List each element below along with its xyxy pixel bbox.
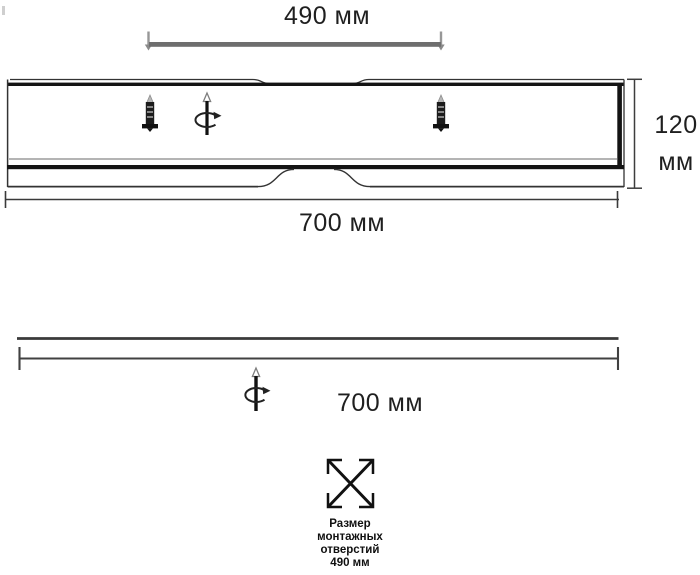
screw-icon (142, 95, 158, 132)
mounting-holes-caption: Размер монтажных отверстий 490 мм (283, 518, 417, 570)
height-dimension-value: 120 (648, 107, 700, 144)
mounting-caption-line2: монтажных (283, 531, 417, 544)
fixture-front-view (7, 80, 624, 188)
top-dimension-label: 490 мм (227, 2, 427, 31)
technical-drawing: 490 мм 120 мм 700 мм 700 мм Размер монта… (0, 0, 700, 575)
width-dimension-line-front (5, 191, 619, 208)
mounting-bar-icon (145, 32, 445, 51)
height-dimension-line (627, 79, 642, 189)
rotation-axis-icon (245, 368, 270, 411)
side-width-dimension-label: 700 мм (280, 389, 480, 418)
mounting-caption-line4: 490 мм (283, 557, 417, 570)
mounting-holes-icon (328, 460, 373, 507)
height-dimension-unit: мм (648, 144, 700, 181)
rotation-axis-icon (195, 93, 221, 135)
screw-icon (433, 95, 449, 132)
drawing-linework (0, 0, 700, 575)
mounting-caption-line1: Размер (283, 518, 417, 531)
width-dimension-line-side (20, 347, 619, 370)
front-width-dimension-label: 700 мм (242, 209, 442, 238)
mounting-caption-line3: отверстий (283, 544, 417, 557)
height-dimension-label: 120 мм (648, 107, 700, 181)
